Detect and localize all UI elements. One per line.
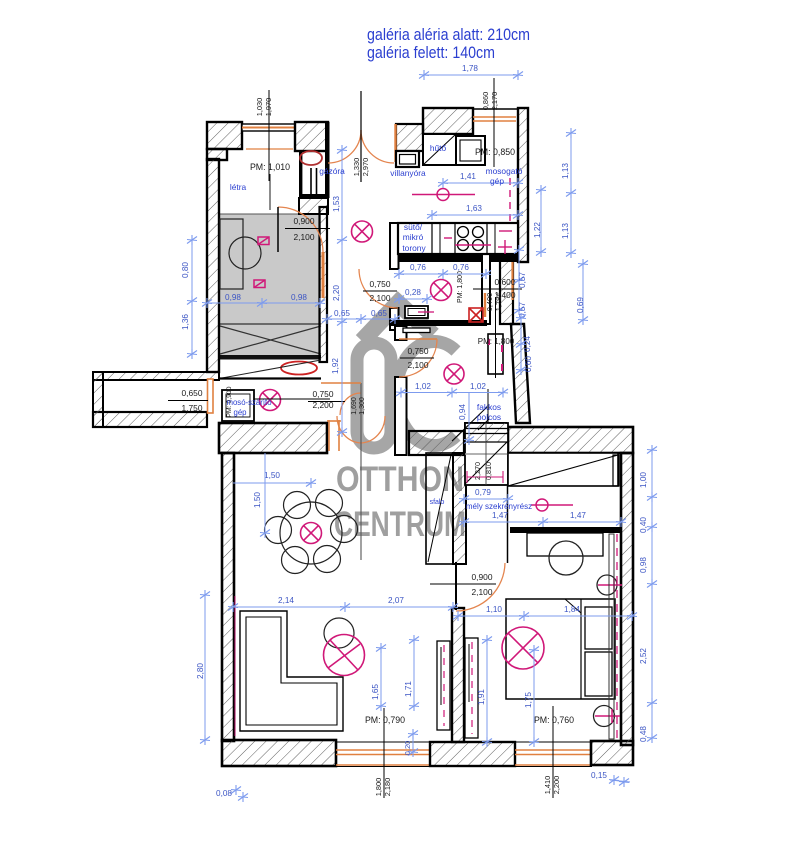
svg-text:2,100: 2,100 (472, 587, 493, 597)
svg-text:PM: 1,800: PM: 1,800 (457, 271, 464, 303)
svg-text:1,10: 1,10 (486, 605, 502, 614)
svg-text:0,69: 0,69 (576, 297, 585, 313)
svg-text:1,53: 1,53 (332, 196, 341, 212)
svg-text:torony: torony (402, 243, 426, 253)
svg-text:0,810: 0,810 (484, 462, 493, 480)
svg-text:PM: 1,800: PM: 1,800 (478, 337, 515, 346)
svg-text:0,76: 0,76 (410, 263, 426, 272)
svg-text:1,50: 1,50 (253, 492, 262, 508)
svg-text:1,36: 1,36 (181, 314, 190, 330)
svg-text:2,100: 2,100 (370, 293, 391, 303)
svg-text:1,63: 1,63 (466, 204, 482, 213)
svg-text:gép: gép (490, 176, 504, 186)
svg-text:1,75: 1,75 (524, 692, 533, 708)
svg-text:0,94: 0,94 (458, 404, 467, 420)
svg-text:0,57: 0,57 (518, 302, 527, 318)
svg-text:0,20: 0,20 (403, 741, 412, 756)
svg-text:2,14: 2,14 (278, 596, 294, 605)
svg-text:0,40: 0,40 (639, 517, 648, 533)
svg-text:0,79: 0,79 (475, 488, 491, 497)
svg-text:1,50: 1,50 (264, 471, 280, 480)
svg-text:0,98: 0,98 (225, 293, 241, 302)
svg-text:fakkos: fakkos (477, 402, 501, 412)
svg-text:1,71: 1,71 (404, 681, 413, 697)
svg-text:mosogató: mosogató (486, 166, 523, 176)
svg-text:1,00: 1,00 (639, 472, 648, 488)
svg-text:mikró: mikró (403, 232, 424, 242)
svg-text:1,47: 1,47 (570, 511, 586, 520)
svg-text:1,65: 1,65 (371, 684, 380, 700)
svg-text:1,02: 1,02 (470, 382, 486, 391)
svg-text:mosó-szárító: mosó-szárító (226, 398, 272, 407)
svg-text:galéria aléria alatt: 210cm: galéria aléria alatt: 210cm (367, 26, 530, 44)
svg-text:1,750: 1,750 (182, 403, 203, 413)
svg-text:0,400: 0,400 (485, 293, 494, 312)
svg-text:2,100: 2,100 (408, 360, 429, 370)
svg-text:sfalo: sfalo (430, 499, 445, 506)
svg-text:2,100: 2,100 (294, 232, 315, 242)
svg-text:villanyóra: villanyóra (390, 168, 426, 178)
svg-text:1,300: 1,300 (359, 397, 366, 415)
svg-text:gép: gép (233, 408, 247, 417)
svg-text:0,80: 0,80 (181, 262, 190, 278)
svg-text:galéria felett: 140cm: galéria felett: 140cm (367, 44, 495, 62)
svg-text:polcos: polcos (477, 412, 501, 422)
svg-text:PM: 0,790: PM: 0,790 (365, 715, 405, 725)
svg-text:0,24: 0,24 (523, 336, 532, 352)
svg-text:PM: 0,850: PM: 0,850 (475, 147, 515, 157)
svg-text:0,76: 0,76 (453, 263, 469, 272)
svg-text:1,84: 1,84 (564, 605, 580, 614)
svg-text:PM: 1,010: PM: 1,010 (250, 162, 290, 172)
svg-text:0,98: 0,98 (291, 293, 307, 302)
svg-text:0,900: 0,900 (294, 216, 315, 226)
svg-text:0,600: 0,600 (495, 277, 516, 287)
svg-text:0,65: 0,65 (371, 309, 387, 318)
svg-text:sütő/: sütő/ (404, 222, 423, 232)
svg-text:2,07: 2,07 (388, 596, 404, 605)
svg-text:2,80: 2,80 (196, 663, 205, 679)
svg-text:0,28: 0,28 (405, 288, 421, 297)
svg-text:1,22: 1,22 (533, 222, 542, 238)
svg-text:2,170: 2,170 (490, 92, 499, 111)
svg-text:0,860: 0,860 (481, 92, 490, 111)
svg-text:1,78: 1,78 (462, 64, 478, 73)
svg-text:0,65: 0,65 (334, 309, 350, 318)
svg-text:1,47: 1,47 (492, 511, 508, 520)
svg-text:1,784: 1,784 (494, 293, 503, 312)
svg-text:2,970: 2,970 (361, 158, 370, 177)
svg-text:0,750: 0,750 (408, 346, 429, 356)
svg-text:2,20: 2,20 (332, 285, 341, 301)
svg-text:1,41: 1,41 (460, 172, 476, 181)
svg-text:gázóra: gázóra (319, 166, 345, 176)
svg-text:1,800: 1,800 (374, 778, 383, 797)
svg-text:0,48: 0,48 (639, 726, 648, 742)
svg-text:0,750: 0,750 (370, 279, 391, 289)
svg-text:0,650: 0,650 (182, 388, 203, 398)
svg-text:1,690: 1,690 (351, 397, 358, 415)
svg-text:0,57: 0,57 (518, 272, 527, 288)
svg-text:1,030: 1,030 (255, 98, 264, 117)
svg-text:1,92: 1,92 (331, 358, 340, 374)
svg-text:2,180: 2,180 (383, 778, 392, 797)
svg-text:1,13: 1,13 (561, 223, 570, 239)
svg-text:1,02: 1,02 (415, 382, 431, 391)
svg-text:létra: létra (230, 182, 247, 192)
svg-text:2,270: 2,270 (473, 462, 482, 480)
svg-text:OTTHON: OTTHON (336, 460, 464, 499)
svg-text:0,98: 0,98 (639, 557, 648, 573)
svg-text:0,900: 0,900 (472, 572, 493, 582)
svg-text:1,970: 1,970 (264, 98, 273, 117)
svg-text:0,08: 0,08 (216, 789, 232, 798)
svg-text:0,750: 0,750 (313, 389, 334, 399)
svg-text:0,60: 0,60 (524, 356, 533, 372)
svg-text:mély szekrényrész: mély szekrényrész (466, 502, 532, 511)
svg-text:2,200: 2,200 (313, 400, 334, 410)
svg-text:PM: 0,760: PM: 0,760 (534, 715, 574, 725)
svg-text:1,330: 1,330 (352, 158, 361, 177)
svg-text:1,91: 1,91 (477, 689, 486, 705)
svg-text:2,52: 2,52 (639, 648, 648, 664)
svg-text:hűtő: hűtő (430, 143, 447, 153)
svg-text:2,200: 2,200 (552, 776, 561, 795)
svg-text:1,13: 1,13 (561, 163, 570, 179)
svg-text:1,410: 1,410 (543, 776, 552, 795)
svg-text:0,15: 0,15 (591, 771, 607, 780)
